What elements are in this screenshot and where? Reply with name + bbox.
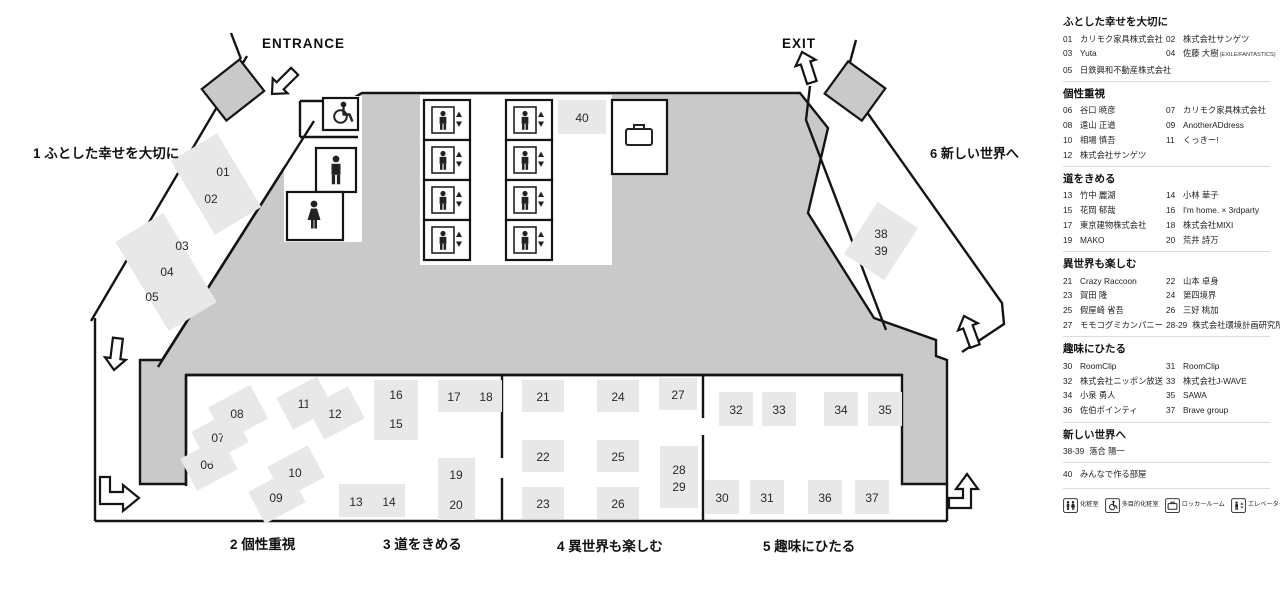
legend-entry-32: 32株式会社ニッポン放送 <box>1063 377 1166 385</box>
booth-number: 04 <box>160 265 174 279</box>
entry-number: 32 <box>1063 377 1075 385</box>
entry-number: 36 <box>1063 406 1075 414</box>
legend-entry-23: 23賀田 隆 <box>1063 291 1166 299</box>
legend-entry-26: 26三好 桃加 <box>1166 306 1280 314</box>
booth-number: 01 <box>216 165 230 179</box>
booth-25: 25 <box>597 440 639 472</box>
legend-entry-35: 35SAWA <box>1166 391 1270 399</box>
facility-label: エレベーター <box>1248 502 1280 508</box>
booth-27: 27 <box>659 378 697 410</box>
entry-number: 12 <box>1063 151 1075 159</box>
entry-name: みんなで作る部屋 <box>1080 470 1146 478</box>
booth-34: 34 <box>824 392 858 426</box>
entry-name: Crazy Raccoon <box>1080 277 1137 285</box>
exit-label: EXIT <box>782 36 816 51</box>
booth-number: 39 <box>874 244 888 258</box>
booth-number: 38 <box>874 227 888 241</box>
legend-entry-05: 05日鉄興和不動産株式会社 <box>1063 66 1166 74</box>
entry-name: 株式会社サンゲツ <box>1080 151 1146 159</box>
booth-24: 24 <box>597 380 639 412</box>
entry-number: 07 <box>1166 106 1178 114</box>
facility-item: 多目的化粧室 <box>1105 498 1159 513</box>
entry-name: 株式会社サンゲツ <box>1183 35 1249 43</box>
legend-entry-18: 18株式会社MIXI <box>1166 221 1270 229</box>
legend-entry-02: 02株式会社サンゲツ <box>1166 35 1276 43</box>
legend-section: 新しい世界へ38-39落合 陽一 <box>1063 422 1270 463</box>
legend-entry-08: 08遠山 正道 <box>1063 121 1166 129</box>
legend-entry-22: 22山本 卓身 <box>1166 277 1280 285</box>
entry-number: 04 <box>1166 49 1178 57</box>
legend-entry-15: 15花岡 郁哉 <box>1063 206 1166 214</box>
entry-number: 01 <box>1063 35 1075 43</box>
booth-number: 18 <box>479 390 493 404</box>
facility-label: 化粧室 <box>1080 502 1099 508</box>
entry-name: 東京建物株式会社 <box>1080 221 1146 229</box>
booth-number: 20 <box>449 498 463 512</box>
booth-number: 27 <box>671 388 685 402</box>
legend-entry-12: 12株式会社サンゲツ <box>1063 151 1166 159</box>
legend-entry-03: 03Yuta <box>1063 49 1166 59</box>
booth-17-18: 1718 <box>438 380 502 412</box>
booth-number: 28 <box>672 463 686 477</box>
entry-name: 相場 慎吾 <box>1080 136 1116 144</box>
legend-section: 道をきめる13竹中 麗湖14小林 華子15花岡 郁哉16I'm home. × … <box>1063 166 1270 251</box>
entry-number: 27 <box>1063 321 1075 329</box>
entry-number: 28-29 <box>1166 321 1187 329</box>
entry-number: 38-39 <box>1063 447 1084 455</box>
facility-label: ロッカールーム <box>1182 502 1225 508</box>
entry-name: カリモク家具株式会社 <box>1183 106 1266 114</box>
legend-entry-28-29: 28-29株式会社環境計画研究所 <box>1166 321 1280 329</box>
legend-entry-40: 40みんなで作る部屋 <box>1063 470 1166 478</box>
booth-32: 32 <box>719 392 753 426</box>
booth-number: 13 <box>349 495 363 509</box>
booth-22: 22 <box>522 440 564 472</box>
booth-number: 10 <box>288 466 302 480</box>
entry-name: 株式会社MIXI <box>1183 221 1233 229</box>
facility-legend: 化粧室多目的化粧室ロッカールームエレベーター <box>1063 488 1270 513</box>
locker-room-icon <box>1165 498 1180 513</box>
facility-item: エレベーター <box>1231 498 1280 513</box>
entry-name: 山本 卓身 <box>1183 277 1219 285</box>
entry-name: 谷口 暁彦 <box>1080 106 1116 114</box>
entry-number: 15 <box>1063 206 1075 214</box>
booth-number: 32 <box>729 403 743 417</box>
entry-name: AnotherADdress <box>1183 121 1244 129</box>
booth-number: 12 <box>328 407 342 421</box>
entry-number: 37 <box>1166 406 1178 414</box>
bottom-right-turn-arrow <box>949 474 978 508</box>
entry-name: 花岡 郁哉 <box>1080 206 1116 214</box>
booth-number: 24 <box>611 390 625 404</box>
entry-number: 10 <box>1063 136 1075 144</box>
booth-number: 36 <box>818 491 832 505</box>
entry-name: SAWA <box>1183 391 1207 399</box>
entry-name: 佐藤 大樹 <box>1183 49 1219 57</box>
booth-16-15: 1615 <box>374 380 418 440</box>
legend-entry-17: 17東京建物株式会社 <box>1063 221 1166 229</box>
entry-number: 33 <box>1166 377 1178 385</box>
booth-number: 17 <box>447 390 461 404</box>
legend-entry-31: 31RoomClip <box>1166 362 1270 370</box>
legend-entry-38-39: 38-39落合 陽一 <box>1063 447 1166 455</box>
booth-26: 26 <box>597 487 639 519</box>
legend-entry-16: 16I'm home. × 3rdparty <box>1166 206 1270 214</box>
entry-name: 小林 華子 <box>1183 191 1219 199</box>
entry-name: RoomClip <box>1080 362 1116 370</box>
booth-number: 03 <box>175 239 189 253</box>
legend-entry-20: 20荒井 詩万 <box>1166 236 1270 244</box>
entry-name: 三好 桃加 <box>1183 306 1219 314</box>
entry-number: 30 <box>1063 362 1075 370</box>
restroom-icon <box>1063 498 1078 513</box>
legend-section: 個性重視06谷口 暁彦07カリモク家具株式会社08遠山 正道09AnotherA… <box>1063 81 1270 166</box>
booth-number: 31 <box>760 491 774 505</box>
entry-number: 31 <box>1166 362 1178 370</box>
legend-section-title: 新しい世界へ <box>1063 430 1270 441</box>
entry-name: 株式会社ニッポン放送 <box>1080 377 1163 385</box>
legend-section-title: 異世界も楽しむ <box>1063 259 1270 270</box>
entry-number: 24 <box>1166 291 1178 299</box>
booth-number: 33 <box>772 403 786 417</box>
entry-number: 23 <box>1063 291 1075 299</box>
facility-item: ロッカールーム <box>1165 498 1225 513</box>
entry-number: 19 <box>1063 236 1075 244</box>
booth-40: 40 <box>558 100 606 134</box>
booth-number: 40 <box>575 111 589 125</box>
zone-label-6: 6 新しい世界へ <box>930 146 1019 161</box>
entry-number: 16 <box>1166 206 1178 214</box>
entry-number: 20 <box>1166 236 1178 244</box>
booth-28-29: 2829 <box>660 446 698 508</box>
booth-number: 26 <box>611 497 625 511</box>
legend-entry-34: 34小泉 勇人 <box>1063 391 1166 399</box>
booth-number: 16 <box>389 388 403 402</box>
booth-number: 15 <box>389 417 403 431</box>
legend-entry-37: 37Brave group <box>1166 406 1270 414</box>
booth-number: 05 <box>145 290 159 304</box>
legend-section: 異世界も楽しむ21Crazy Raccoon22山本 卓身23賀田 隆24第四境… <box>1063 251 1270 336</box>
entry-name: 假屋崎 省吾 <box>1080 306 1124 314</box>
booth-number: 34 <box>834 403 848 417</box>
zone-label-1: 1 ふとした幸せを大切に <box>33 145 179 161</box>
booth-number: 22 <box>536 450 550 464</box>
legend-entry-07: 07カリモク家具株式会社 <box>1166 106 1270 114</box>
legend-section-title: 個性重視 <box>1063 89 1270 100</box>
entry-number: 14 <box>1166 191 1178 199</box>
booth-37: 37 <box>855 480 889 514</box>
legend-entry-19: 19MAKO <box>1063 236 1166 244</box>
entry-number: 40 <box>1063 470 1075 478</box>
booth-number: 30 <box>715 491 729 505</box>
booth-36: 36 <box>808 480 842 514</box>
entrance-label: ENTRANCE <box>262 36 345 51</box>
entry-name: Brave group <box>1183 406 1228 414</box>
entry-number: 18 <box>1166 221 1178 229</box>
legend-entry-01: 01カリモク家具株式会社 <box>1063 35 1166 43</box>
booth-19-20: 1920 <box>438 458 475 520</box>
entry-number: 11 <box>1166 136 1178 144</box>
zone-label-4: 4 異世界も楽しむ <box>557 538 663 554</box>
entry-name: モモコグミカンパニー <box>1080 321 1163 329</box>
legend-entry-10: 10相場 慎吾 <box>1063 136 1166 144</box>
booth-number: 19 <box>449 468 463 482</box>
legend-entry-04: 04佐藤 大樹(EXILE/FANTASTICS) <box>1166 49 1276 59</box>
entry-number: 35 <box>1166 391 1178 399</box>
accessible-restroom-icon <box>1105 498 1120 513</box>
entry-number: 25 <box>1063 306 1075 314</box>
booth-number: 09 <box>269 491 283 505</box>
entry-name: 賀田 隆 <box>1080 291 1107 299</box>
facility-item: 化粧室 <box>1063 498 1099 513</box>
booth-number: 35 <box>878 403 892 417</box>
entry-name: 荒井 詩万 <box>1183 236 1219 244</box>
legend-section: ふとした幸せを大切に01カリモク家具株式会社02株式会社サンゲツ03Yuta04… <box>1063 10 1270 81</box>
booth-number: 14 <box>382 495 396 509</box>
booth-30: 30 <box>705 480 739 514</box>
exit-arrow <box>792 49 822 86</box>
legend-section-title: 趣味にひたる <box>1063 344 1270 355</box>
legend-entry-24: 24第四境界 <box>1166 291 1280 299</box>
booth-23: 23 <box>522 487 564 519</box>
entry-number: 09 <box>1166 121 1178 129</box>
booth-21: 21 <box>522 380 564 412</box>
legend-entry-11: 11くっきー! <box>1166 136 1270 144</box>
legend-section-title: ふとした幸せを大切に <box>1063 17 1270 28</box>
zone-label-5: 5 趣味にひたる <box>763 538 855 554</box>
entry-number: 22 <box>1166 277 1178 285</box>
legend-entry-25: 25假屋崎 省吾 <box>1063 306 1166 314</box>
floor-map-canvas: 0102030405060708091011121615171813141920… <box>0 0 1045 585</box>
legend-section: 趣味にひたる30RoomClip31RoomClip32株式会社ニッポン放送33… <box>1063 336 1270 421</box>
booth-35: 35 <box>868 392 902 426</box>
booth-31: 31 <box>750 480 784 514</box>
entry-name: 竹中 麗湖 <box>1080 191 1116 199</box>
legend-entry-21: 21Crazy Raccoon <box>1063 277 1166 285</box>
entry-number: 26 <box>1166 306 1178 314</box>
entry-number: 34 <box>1063 391 1075 399</box>
restroom-accessible <box>323 98 358 130</box>
booth-number: 29 <box>672 480 686 494</box>
locker-room-icon <box>626 125 652 145</box>
booth-number: 37 <box>865 491 879 505</box>
entry-name: 落合 陽一 <box>1089 447 1125 455</box>
entry-name: 株式会社環境計画研究所 <box>1192 321 1280 329</box>
entry-name: 佐伯ポインティ <box>1080 406 1138 414</box>
entry-name: MAKO <box>1080 236 1104 244</box>
entry-number: 21 <box>1063 277 1075 285</box>
legend-entry-14: 14小林 華子 <box>1166 191 1270 199</box>
legend-entry-27: 27モモコグミカンパニー <box>1063 321 1166 329</box>
zone-label-3: 3 道をきめる <box>383 536 462 552</box>
booth-13-14: 1314 <box>339 484 405 517</box>
entry-name: 第四境界 <box>1183 291 1216 299</box>
entry-name: 遠山 正道 <box>1080 121 1116 129</box>
legend-entry-06: 06谷口 暁彦 <box>1063 106 1166 114</box>
zone-label-2: 2 個性重視 <box>230 536 296 552</box>
legend-section: 40みんなで作る部屋 <box>1063 462 1270 485</box>
legend-entry-30: 30RoomClip <box>1063 362 1166 370</box>
entry-name: I'm home. × 3rdparty <box>1183 206 1259 214</box>
entry-name: 株式会社J-WAVE <box>1183 377 1247 385</box>
legend-entry-33: 33株式会社J-WAVE <box>1166 377 1270 385</box>
entry-number: 13 <box>1063 191 1075 199</box>
entry-name: くっきー! <box>1183 136 1219 144</box>
legend-entry-09: 09AnotherADdress <box>1166 121 1270 129</box>
entry-name-suffix: (EXILE/FANTASTICS) <box>1220 53 1276 59</box>
exhibitor-legend-panel: ふとした幸せを大切に01カリモク家具株式会社02株式会社サンゲツ03Yuta04… <box>1063 10 1270 513</box>
legend-section-title: 道をきめる <box>1063 174 1270 185</box>
entry-name: RoomClip <box>1183 362 1219 370</box>
entry-number: 03 <box>1063 49 1075 57</box>
entry-number: 02 <box>1166 35 1178 43</box>
entry-name: 小泉 勇人 <box>1080 391 1116 399</box>
entry-number: 17 <box>1063 221 1075 229</box>
booth-number: 02 <box>204 192 218 206</box>
legend-entry-36: 36佐伯ポインティ <box>1063 406 1166 414</box>
facility-label: 多目的化粧室 <box>1122 502 1159 508</box>
booth-number: 21 <box>536 390 550 404</box>
booth-number: 23 <box>536 497 550 511</box>
entry-name: Yuta <box>1080 49 1097 57</box>
floor-map: 0102030405060708091011121615171813141920… <box>0 0 1045 585</box>
entry-name: 日鉄興和不動産株式会社 <box>1080 66 1171 74</box>
booth-number: 08 <box>230 407 244 421</box>
entry-number: 06 <box>1063 106 1075 114</box>
entry-number: 05 <box>1063 66 1075 74</box>
legend-entry-13: 13竹中 麗湖 <box>1063 191 1166 199</box>
elevator-icon <box>1231 498 1246 513</box>
booth-number: 25 <box>611 450 625 464</box>
booth-33: 33 <box>762 392 796 426</box>
entry-name: カリモク家具株式会社 <box>1080 35 1163 43</box>
entry-number: 08 <box>1063 121 1075 129</box>
